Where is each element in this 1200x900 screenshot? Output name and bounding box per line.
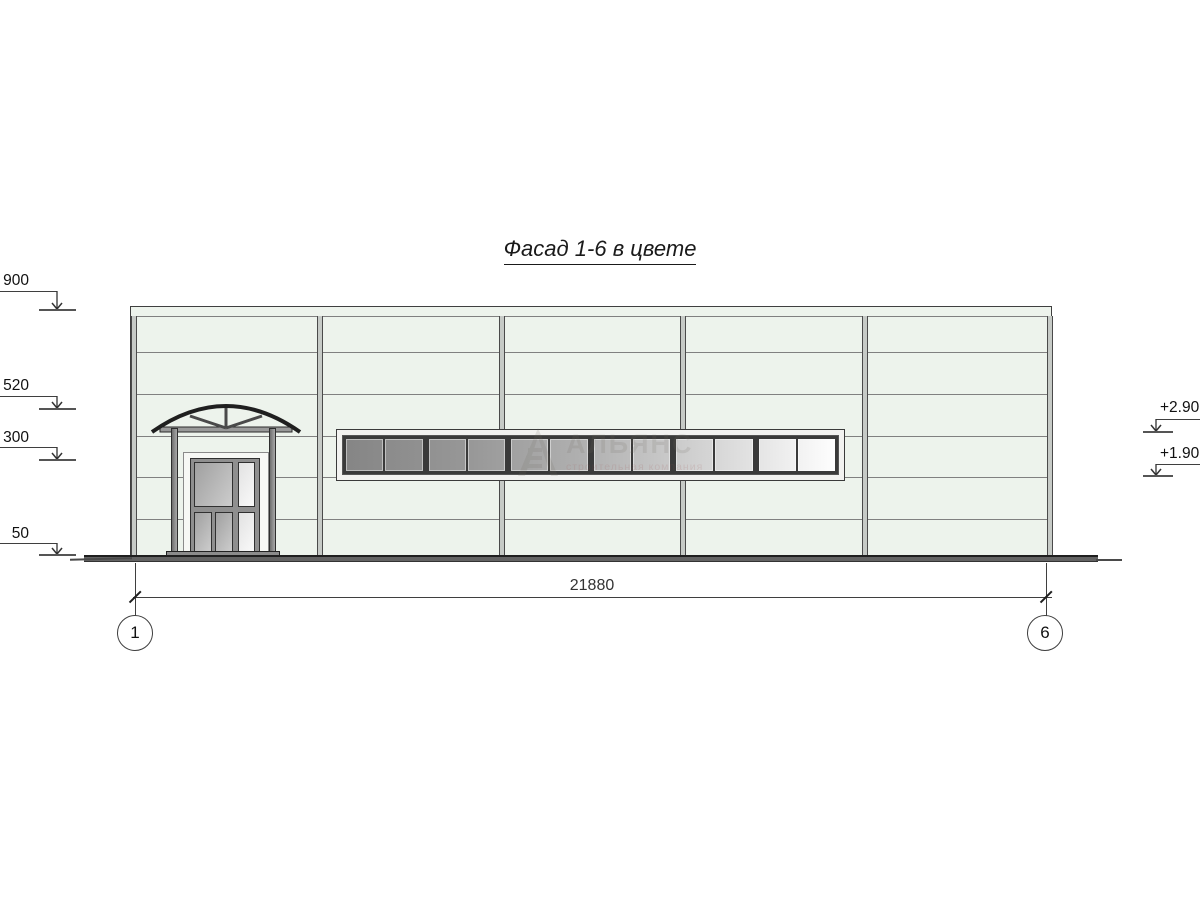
door-glass-pane: [215, 512, 233, 552]
window-pane: [797, 438, 836, 472]
elevation-mark-level-line: [39, 408, 76, 410]
axis-extension-line-6: [1046, 563, 1047, 616]
window-pane: [632, 438, 671, 472]
elevation-mark-value: 900: [0, 272, 29, 290]
facade-joint-line: [131, 352, 1051, 353]
elevation-mark-level-line: [1143, 431, 1173, 433]
drawing-title-text: Фасад 1-6 в цвете: [504, 236, 697, 265]
elevation-mark-arrow-icon: [50, 291, 64, 311]
axis-marker-6: 6: [1027, 615, 1063, 651]
ground-extension-right: [1096, 559, 1122, 561]
dimension-value: 21880: [492, 577, 692, 595]
facade-mullion: [317, 316, 323, 555]
window-pane: [428, 438, 467, 472]
window-pane-group: [756, 436, 839, 474]
door-glass-pane: [194, 512, 212, 552]
elevation-mark-leader: [0, 291, 57, 292]
elevation-mark-level-line: [39, 459, 76, 461]
ribbon-window-glass: [342, 435, 839, 475]
window-pane: [758, 438, 797, 472]
window-pane: [593, 438, 632, 472]
ribbon-window-grid: [343, 436, 838, 474]
canopy-post-left: [171, 428, 178, 556]
window-pane-group: [591, 436, 674, 474]
elevation-mark-level-line: [39, 554, 76, 556]
facade-mullion: [1047, 316, 1053, 555]
door-glass-pane: [238, 512, 255, 552]
facade-joint-line: [131, 316, 1051, 317]
canopy-strut-right: [226, 416, 262, 428]
elevation-mark-value: 300: [0, 429, 29, 447]
entrance-door: [190, 458, 260, 555]
elevation-mark-value: 50: [0, 525, 29, 543]
window-pane: [345, 438, 384, 472]
axis-marker-1: 1: [117, 615, 153, 651]
canopy-post-right: [269, 428, 276, 556]
window-pane: [384, 438, 423, 472]
dimension-line: [133, 597, 1052, 598]
ground-line: [84, 555, 1098, 562]
window-pane-group: [426, 436, 509, 474]
axis-marker-1-label: 1: [130, 623, 139, 643]
window-pane-group: [343, 436, 426, 474]
window-pane-group: [673, 436, 756, 474]
axis-marker-6-label: 6: [1040, 623, 1049, 643]
window-pane: [549, 438, 588, 472]
elevation-mark-value: +1.90: [1160, 445, 1199, 463]
window-pane: [714, 438, 753, 472]
drawing-title: Фасад 1-6 в цвете: [400, 236, 800, 262]
elevation-mark-value: 520: [0, 377, 29, 395]
window-pane-group: [508, 436, 591, 474]
elevation-mark-level-line: [1143, 475, 1173, 477]
facade-drawing: Фасад 1-6 в цвете: [0, 0, 1200, 900]
window-pane: [510, 438, 549, 472]
window-pane: [675, 438, 714, 472]
door-glass-pane: [194, 462, 233, 507]
entrance-recess: [183, 452, 269, 556]
facade-mullion: [131, 316, 137, 555]
elevation-mark-leader: [0, 543, 57, 544]
axis-extension-line-1: [135, 563, 136, 616]
entrance-canopy: [140, 396, 312, 440]
facade-joint-line: [131, 394, 1051, 395]
window-pane: [467, 438, 506, 472]
door-glass-pane: [238, 462, 255, 507]
canopy-strut-left: [190, 416, 226, 428]
facade-mullion: [862, 316, 868, 555]
ribbon-window: [336, 429, 845, 481]
elevation-mark-leader: [0, 447, 57, 448]
elevation-mark-level-line: [39, 309, 76, 311]
elevation-mark-leader: [0, 396, 57, 397]
elevation-mark-value: +2.90: [1160, 399, 1199, 417]
